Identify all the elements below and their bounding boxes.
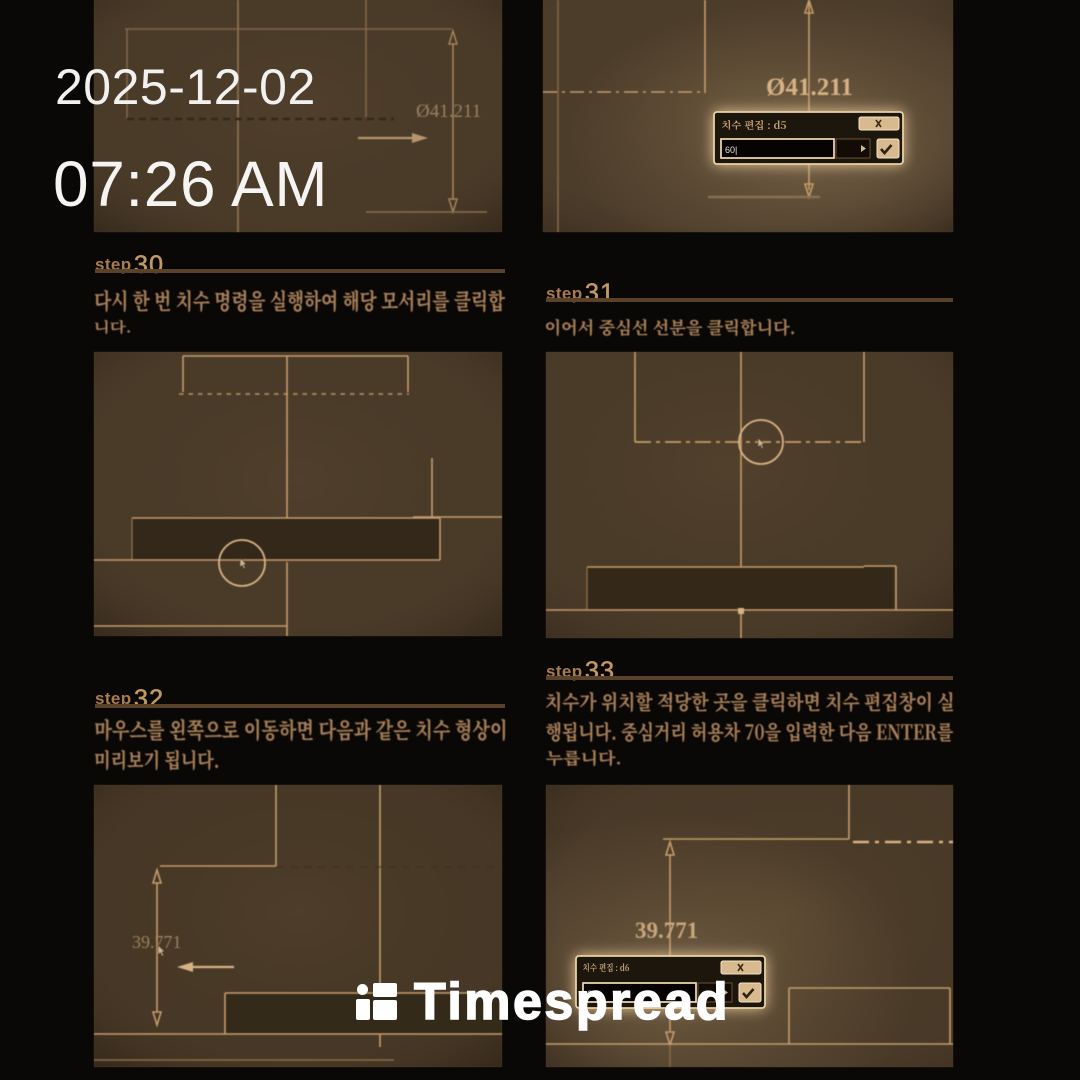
svg-text:60|: 60| xyxy=(725,145,737,155)
